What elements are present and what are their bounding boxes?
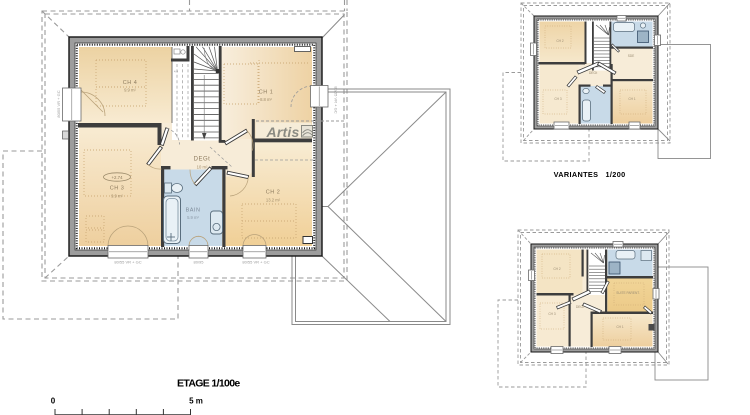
- svg-text:5.9 m²: 5.9 m²: [187, 215, 199, 220]
- svg-text:DEGt: DEGt: [589, 71, 597, 75]
- svg-text:80/55 VR + GC: 80/55 VR + GC: [242, 260, 269, 265]
- svg-text:10 m²: 10 m²: [197, 165, 208, 170]
- svg-text:9.9 m²: 9.9 m²: [111, 194, 123, 199]
- svg-text:CH 3: CH 3: [548, 312, 555, 316]
- svg-text:CH 1: CH 1: [259, 90, 274, 96]
- svg-text:5 m: 5 m: [189, 397, 203, 406]
- svg-text:CH 1: CH 1: [628, 97, 635, 101]
- svg-text:8.8 m²: 8.8 m²: [260, 97, 272, 102]
- svg-text:CH 2: CH 2: [556, 39, 563, 43]
- svg-text:13.2 m²: 13.2 m²: [266, 198, 281, 203]
- svg-text:9.9 m²: 9.9 m²: [124, 88, 136, 93]
- svg-text:CH 4: CH 4: [123, 80, 138, 86]
- svg-text:+2.74: +2.74: [111, 175, 123, 180]
- svg-text:DEGt: DEGt: [576, 305, 584, 309]
- svg-text:CH 2: CH 2: [553, 267, 560, 271]
- svg-text:ETAGE 1/100e: ETAGE 1/100e: [177, 378, 240, 390]
- svg-text:80/55 VR + GC: 80/55 VR + GC: [56, 90, 61, 117]
- svg-text:CH 1: CH 1: [616, 325, 623, 329]
- svg-text:0: 0: [51, 397, 56, 406]
- svg-text:CH 2: CH 2: [266, 190, 281, 196]
- svg-text:Artis: Artis: [266, 124, 300, 140]
- svg-text:DEGt: DEGt: [194, 157, 211, 163]
- svg-text:CH 3: CH 3: [554, 97, 561, 101]
- svg-text:80/55 VR + GC: 80/55 VR + GC: [114, 260, 141, 265]
- svg-text:4.4: 4.4: [174, 70, 179, 74]
- svg-text:VARIANTES 1/200: VARIANTES 1/200: [554, 170, 626, 179]
- svg-text:80/55 VR + GC: 80/55 VR + GC: [334, 86, 339, 113]
- svg-text:CH 3: CH 3: [110, 186, 125, 192]
- svg-text:80/95: 80/95: [193, 260, 204, 265]
- svg-text:BAIN: BAIN: [186, 208, 201, 214]
- svg-text:SUITE PARENT.: SUITE PARENT.: [616, 291, 640, 295]
- svg-text:SDE: SDE: [628, 54, 635, 58]
